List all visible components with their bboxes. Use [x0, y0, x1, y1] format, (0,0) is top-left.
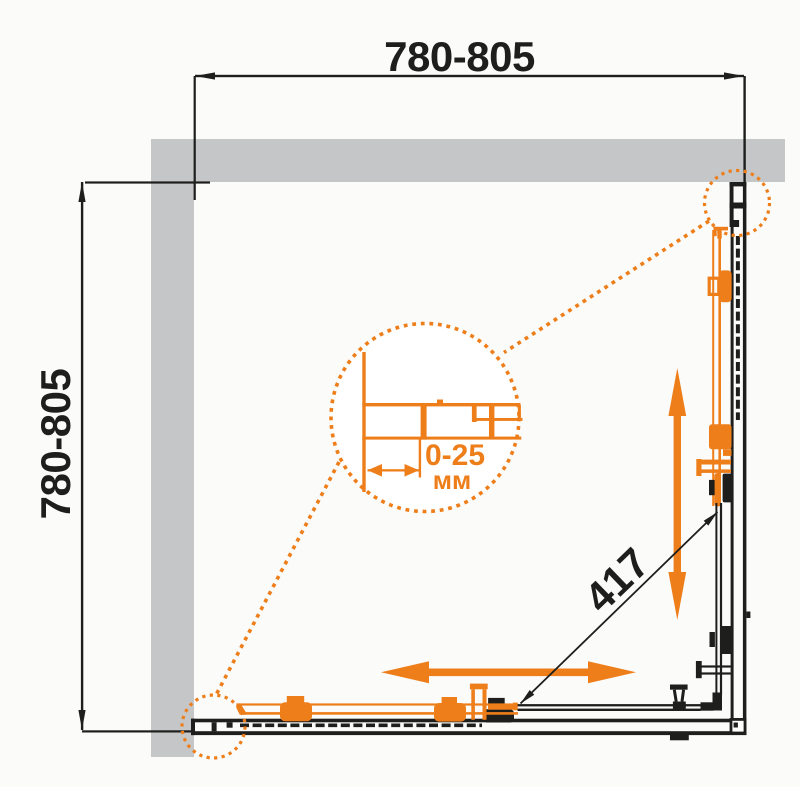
- svg-text:780-805: 780-805: [384, 33, 535, 80]
- svg-text:780-805: 780-805: [32, 369, 79, 520]
- svg-text:мм: мм: [433, 465, 471, 495]
